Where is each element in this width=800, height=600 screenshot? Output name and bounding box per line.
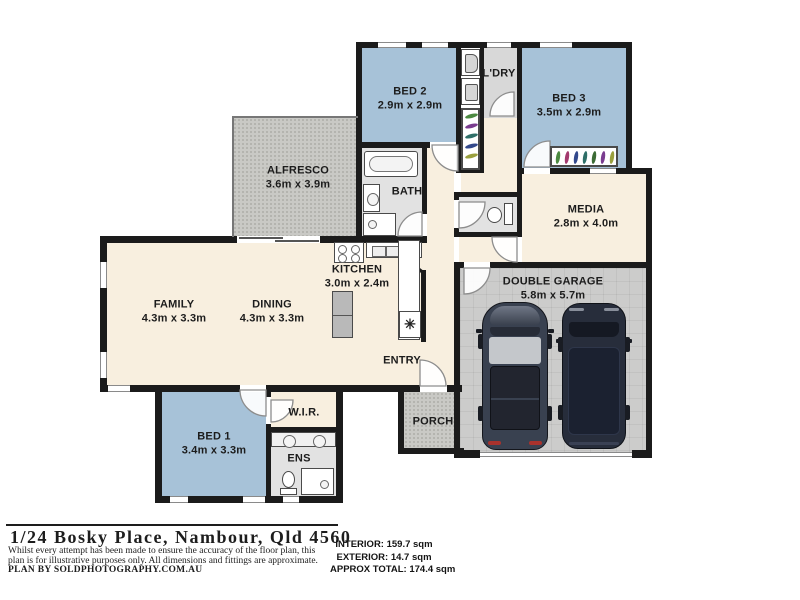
wall-segment bbox=[632, 450, 652, 458]
window bbox=[422, 42, 448, 48]
bathtub-icon bbox=[364, 151, 418, 177]
door-opening bbox=[464, 262, 490, 268]
hallway bbox=[426, 148, 454, 262]
wall-segment bbox=[480, 42, 484, 172]
window bbox=[487, 42, 511, 48]
room-label-porch: PORCH bbox=[413, 415, 454, 429]
wall-segment bbox=[421, 270, 426, 342]
wall-segment bbox=[454, 228, 459, 237]
pantry-icon: ✳ bbox=[399, 311, 421, 338]
room-label-ldry: L'DRY bbox=[482, 67, 515, 81]
room-label-bed1: BED 13.4m x 3.3m bbox=[182, 431, 247, 458]
room-label-media: MEDIA2.8m x 4.0m bbox=[554, 204, 619, 231]
wall-segment bbox=[336, 385, 343, 503]
room-label-family: FAMILY4.3m x 3.3m bbox=[142, 299, 207, 326]
disclaimer-line1: Whilst every attempt has been made to en… bbox=[8, 546, 315, 556]
floor-plan-page: ✳ BED 22.9m x 2.9m L'DRY BED 33.5m x 2.9… bbox=[0, 0, 800, 600]
room-label-alfresco: ALFRESCO3.6m x 3.9m bbox=[266, 165, 331, 192]
wall-segment bbox=[454, 262, 460, 458]
sliding-door bbox=[237, 236, 320, 243]
wall-segment bbox=[454, 192, 459, 200]
window bbox=[590, 168, 616, 174]
vanity-icon bbox=[271, 432, 336, 447]
wall-segment bbox=[517, 42, 522, 172]
shower-icon bbox=[363, 213, 396, 236]
door-opening bbox=[517, 237, 522, 262]
room-label-bed3: BED 33.5m x 2.9m bbox=[537, 93, 602, 120]
footer-divider bbox=[6, 524, 338, 526]
door-opening bbox=[454, 200, 459, 228]
window bbox=[100, 352, 107, 378]
room-label-dining: DINING4.3m x 3.3m bbox=[240, 299, 305, 326]
alfresco-edge-line bbox=[232, 116, 358, 118]
toilet-icon bbox=[487, 207, 502, 223]
window bbox=[378, 42, 406, 48]
shower-icon bbox=[301, 468, 334, 495]
car-top-view bbox=[479, 302, 551, 450]
toilet-icon bbox=[282, 471, 295, 488]
room-label-ens: ENS bbox=[287, 452, 310, 466]
door-opening bbox=[430, 142, 456, 148]
car-top-view bbox=[560, 303, 628, 449]
interior-area: INTERIOR: 159.7 sqm bbox=[330, 539, 438, 552]
wardrobe-icon bbox=[550, 146, 618, 167]
room-label-garage: DOUBLE GARAGE5.8m x 5.7m bbox=[503, 276, 603, 303]
wall-segment bbox=[490, 262, 652, 268]
door-opening bbox=[422, 214, 427, 236]
door-opening bbox=[240, 385, 266, 392]
toilet-icon bbox=[280, 488, 297, 495]
toilet-icon bbox=[504, 203, 513, 225]
window bbox=[100, 262, 107, 288]
hallway bbox=[459, 237, 517, 262]
window bbox=[170, 496, 188, 503]
alfresco-edge-line bbox=[232, 116, 234, 237]
wall-segment bbox=[422, 148, 427, 214]
wall-segment bbox=[626, 42, 632, 174]
wall-segment bbox=[100, 236, 237, 243]
address: 1/24 Bosky Place, Nambour, Qld 4560 bbox=[10, 527, 351, 548]
disclaimer-line2: plan is for illustrative purposes only. … bbox=[8, 556, 318, 566]
wall-segment bbox=[155, 385, 162, 503]
wardrobe-icon bbox=[461, 108, 480, 170]
hallway bbox=[484, 118, 517, 196]
window bbox=[540, 42, 572, 48]
exterior-area: EXTERIOR: 14.7 sqm bbox=[330, 552, 438, 565]
window bbox=[283, 496, 299, 503]
wall-segment bbox=[646, 168, 652, 268]
room-label-kitchen: KITCHEN3.0m x 2.4m bbox=[325, 264, 390, 291]
disclaimer: Whilst every attempt has been made to en… bbox=[8, 547, 353, 566]
window bbox=[108, 385, 130, 392]
garage-door bbox=[480, 452, 632, 457]
area-summary: INTERIOR: 159.7 sqm EXTERIOR: 14.7 sqm A… bbox=[330, 539, 438, 577]
door-opening bbox=[420, 385, 447, 392]
total-area: APPROX TOTAL: 174.4 sqm bbox=[330, 564, 438, 577]
room-ldry bbox=[484, 48, 517, 118]
washing-machine-icon bbox=[461, 78, 480, 105]
fridge-icon bbox=[332, 291, 353, 338]
wall-segment bbox=[398, 448, 464, 454]
wall-segment bbox=[646, 268, 652, 458]
room-label-bed2: BED 22.9m x 2.9m bbox=[378, 86, 443, 113]
room-label-entry: ENTRY bbox=[383, 354, 421, 368]
door-opening bbox=[524, 168, 550, 174]
wall-segment bbox=[454, 192, 517, 197]
wall-segment bbox=[454, 232, 517, 237]
laundry-trough-icon bbox=[461, 49, 480, 76]
wall-segment bbox=[356, 142, 430, 148]
wall-segment bbox=[266, 385, 420, 392]
room-label-wir: W.I.R. bbox=[288, 406, 319, 420]
wall-segment bbox=[398, 388, 404, 454]
wall-segment bbox=[517, 168, 522, 237]
door-opening bbox=[266, 397, 271, 424]
window bbox=[243, 496, 265, 503]
room-label-bath: BATH bbox=[392, 185, 423, 199]
basin-icon bbox=[363, 184, 380, 212]
plan-credit: PLAN BY SOLDPHOTOGRAPHY.COM.AU bbox=[8, 565, 202, 575]
stove-icon bbox=[334, 242, 364, 263]
